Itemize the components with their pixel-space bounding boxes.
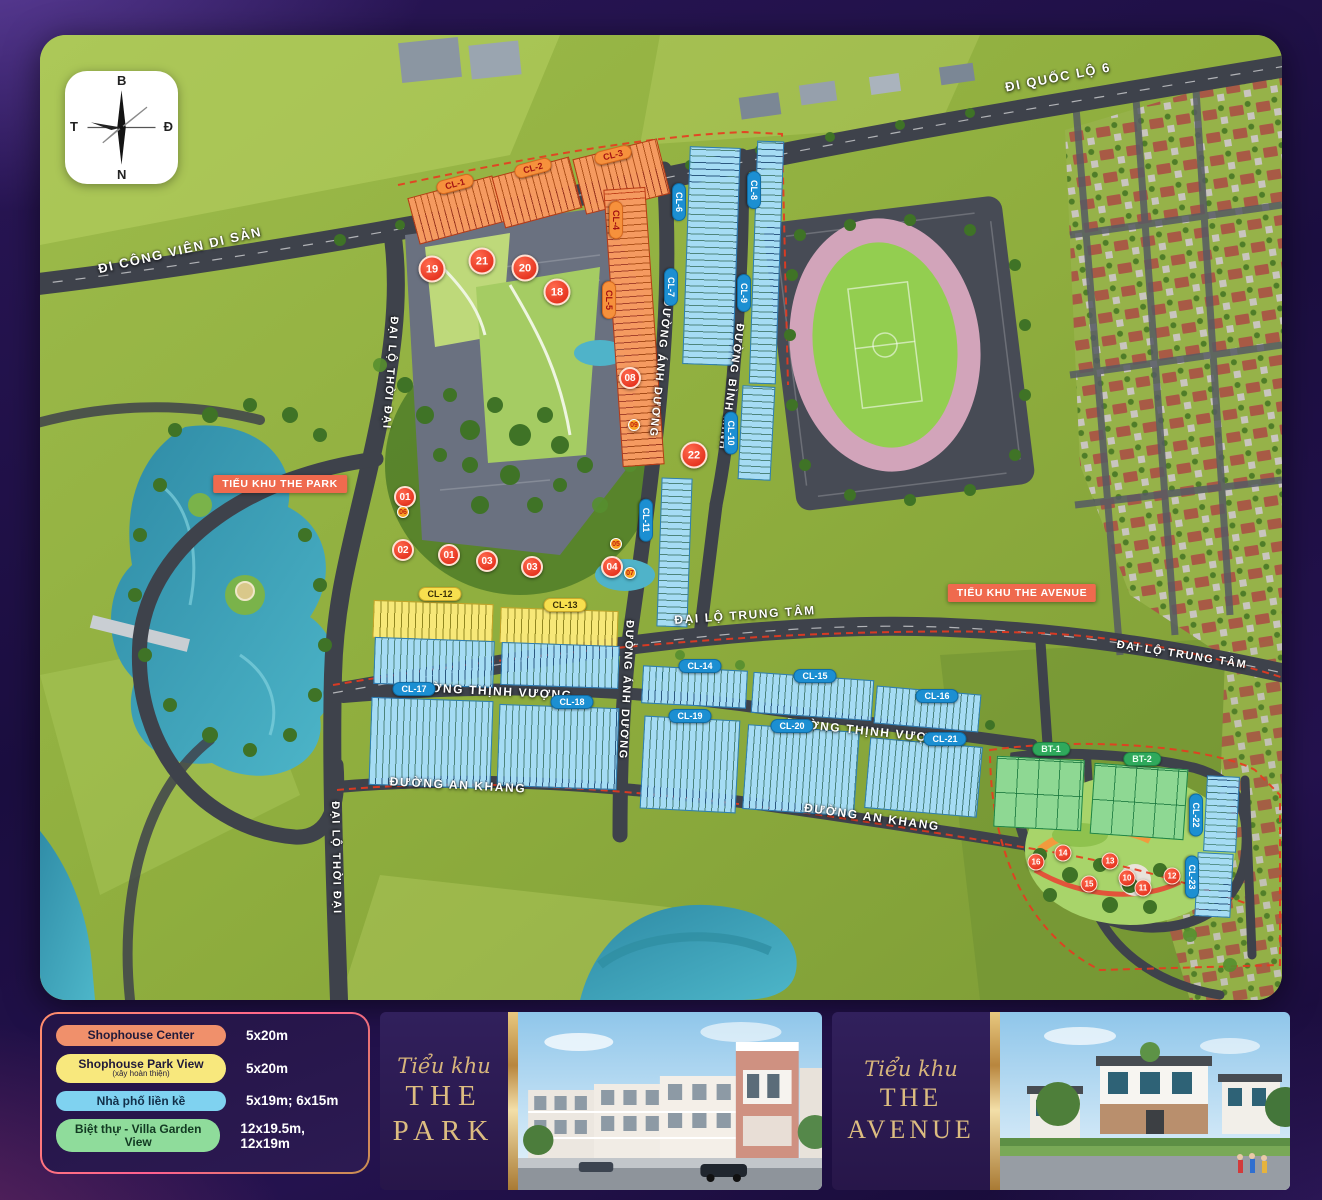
the-avenue-script-label: Tiểu khu bbox=[864, 1057, 958, 1081]
the-avenue-title-block: Tiểu khu THE AVENUE bbox=[832, 1012, 990, 1190]
legend-size-value: 12x19.5m, 12x19m bbox=[240, 1121, 354, 1151]
legend-size-value: 5x19m; 6x15m bbox=[246, 1093, 338, 1108]
legend-row-3: Biệt thự - Villa Garden View12x19.5m, 12… bbox=[56, 1119, 354, 1152]
the-avenue-title-line1: THE bbox=[880, 1083, 943, 1113]
legend-pill-1: Shophouse Park View(xây hoàn thiện) bbox=[56, 1054, 226, 1083]
the-avenue-title-line2: AVENUE bbox=[847, 1115, 975, 1145]
the-park-title-block: Tiểu khu THE PARK bbox=[380, 1012, 508, 1190]
compass-east-label: Đ bbox=[164, 119, 173, 134]
masterplan-map: ĐI CÔNG VIÊN DI SẢNĐI QUỐC LỘ 6ĐẠI LỘ TH… bbox=[40, 35, 1282, 1000]
legend-row-0: Shophouse Center5x20m bbox=[56, 1025, 354, 1046]
masterplan-page: ĐI CÔNG VIÊN DI SẢNĐI QUỐC LỘ 6ĐẠI LỘ TH… bbox=[0, 0, 1322, 1200]
legend-size-value: 5x20m bbox=[246, 1061, 288, 1076]
legend-label: Shophouse Center bbox=[62, 1029, 220, 1042]
gold-divider bbox=[990, 1012, 1000, 1190]
map-terrain-art bbox=[40, 35, 1282, 1000]
legend-pill-2: Nhà phố liền kề bbox=[56, 1091, 226, 1112]
the-park-title-line2: PARK bbox=[393, 1115, 496, 1148]
panel-the-park: Tiểu khu THE PARK bbox=[380, 1012, 822, 1190]
the-park-photo bbox=[518, 1012, 822, 1190]
legend-label: Nhà phố liền kề bbox=[62, 1095, 220, 1108]
legend-label: Biệt thự - Villa Garden View bbox=[62, 1123, 214, 1148]
legend-sublabel: (xây hoàn thiện) bbox=[62, 1070, 220, 1078]
legend-row-1: Shophouse Park View(xây hoàn thiện)5x20m bbox=[56, 1054, 354, 1083]
footer-strip: Shophouse Center5x20mShophouse Park View… bbox=[40, 1012, 1290, 1190]
legend-row-2: Nhà phố liền kề5x19m; 6x15m bbox=[56, 1091, 354, 1112]
compass-rose: B Đ N T bbox=[65, 71, 178, 184]
the-park-script-label: Tiểu khu bbox=[397, 1054, 491, 1078]
legend-pill-3: Biệt thự - Villa Garden View bbox=[56, 1119, 220, 1152]
legend-panel: Shophouse Center5x20mShophouse Park View… bbox=[40, 1012, 370, 1174]
legend-size-value: 5x20m bbox=[246, 1028, 288, 1043]
compass-star-icon bbox=[79, 85, 164, 170]
legend-pill-0: Shophouse Center bbox=[56, 1025, 226, 1046]
the-avenue-photo bbox=[1000, 1012, 1290, 1190]
panel-the-avenue: Tiểu khu THE AVENUE bbox=[832, 1012, 1290, 1190]
legend-rows: Shophouse Center5x20mShophouse Park View… bbox=[56, 1025, 354, 1152]
compass-west-label: T bbox=[70, 119, 78, 134]
compass-north-label: B bbox=[117, 73, 126, 88]
gold-divider bbox=[508, 1012, 518, 1190]
compass-south-label: N bbox=[117, 167, 126, 182]
the-park-title-line1: THE bbox=[405, 1080, 482, 1113]
